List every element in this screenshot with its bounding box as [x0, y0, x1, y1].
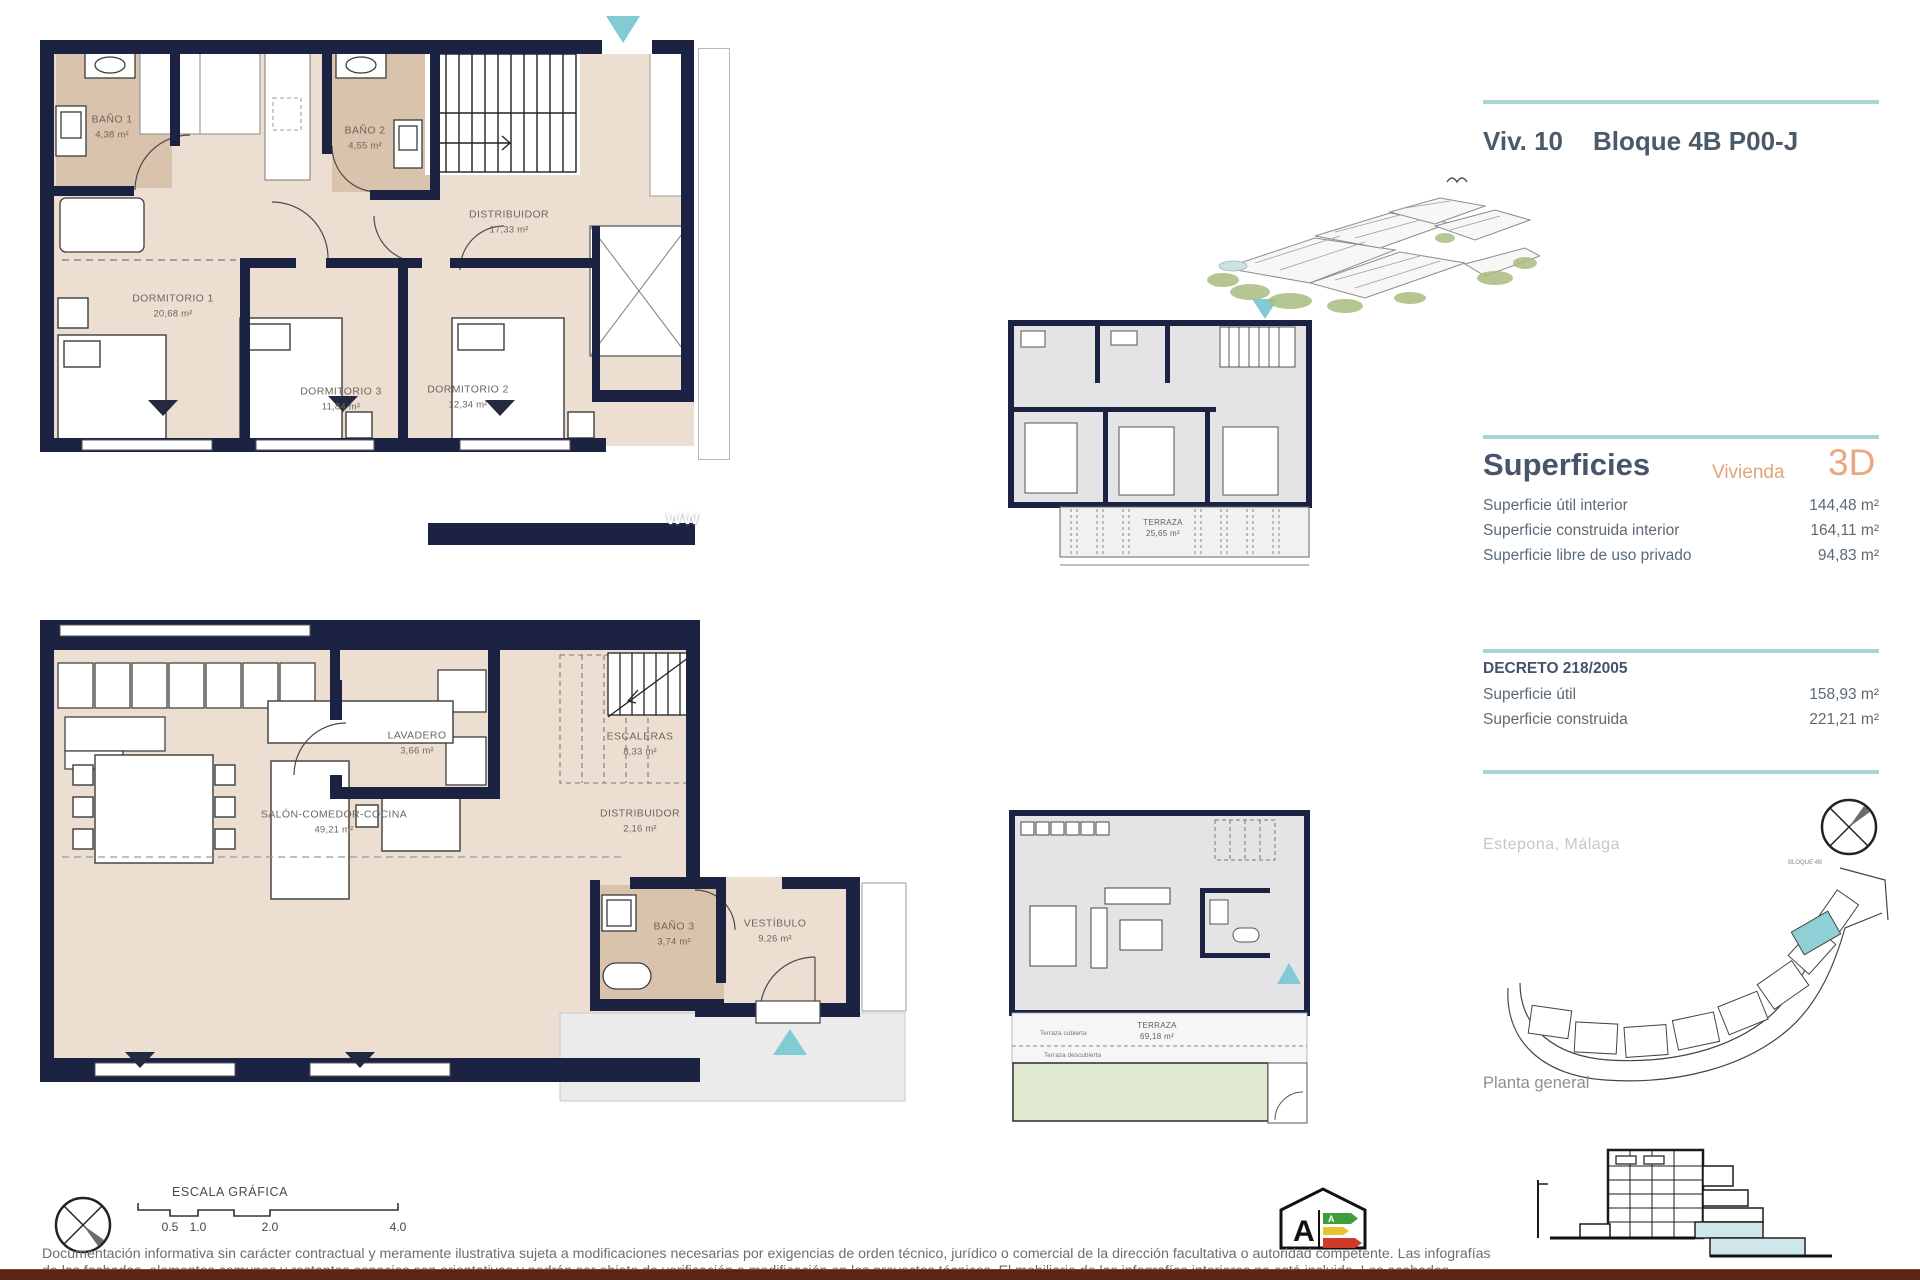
- room-label-bano1: BAÑO 1 4,38 m²: [92, 112, 133, 141]
- svg-text:A: A: [1328, 1214, 1335, 1224]
- mini-upper-terraza-label: TERRAZA 25,65 m²: [1143, 518, 1182, 540]
- room-area: 20,68 m²: [153, 308, 192, 319]
- room-label-dormitorio3: DORMITORIO 3 11,84 m²: [300, 384, 382, 413]
- room-area: 69,18 m²: [1140, 1032, 1174, 1041]
- svg-text:2.0: 2.0: [262, 1220, 279, 1234]
- room-name: BAÑO 2: [345, 124, 386, 136]
- room-label-distribuidor-p0: DISTRIBUIDOR 2,16 m²: [600, 806, 680, 835]
- room-name: DORMITORIO 1: [132, 292, 214, 304]
- row-label: Superficie útil: [1483, 686, 1576, 704]
- room-label-bano3: BAÑO 3 3,74 m²: [654, 919, 695, 948]
- room-area: 11,84 m²: [322, 401, 360, 412]
- mini-lower-terraza-label: TERRAZA 69,18 m²: [1137, 1021, 1176, 1043]
- room-area: 9,26 m²: [758, 933, 792, 944]
- aerial-3d-sketch: [1195, 168, 1540, 346]
- upper-floor-plan-drawing: [40, 40, 740, 480]
- room-area: 3,66 m²: [400, 745, 434, 756]
- room-label-bano2: BAÑO 2 4,55 m²: [345, 123, 386, 152]
- room-label-distribuidor-p1: DISTRIBUIDOR 17,33 m²: [469, 207, 549, 236]
- location-label: Estepona, Málaga: [1483, 836, 1620, 854]
- room-name: ESCALERAS: [607, 730, 674, 742]
- site-plan-block-label: BLOQUE 4B: [1788, 860, 1822, 866]
- room-name: DISTRIBUIDOR: [600, 807, 680, 819]
- room-name: BAÑO 3: [654, 920, 695, 932]
- row-value: 94,83 m²: [1818, 547, 1879, 565]
- room-label-salon: SALÓN-COMEDOR-COCINA 49,21 m²: [261, 807, 407, 836]
- upper-plan-balcony-edge: [698, 48, 730, 460]
- room-label-escaleras: ESCALERAS 8,33 m²: [607, 729, 674, 758]
- room-name: SALÓN-COMEDOR-COCINA: [261, 808, 407, 820]
- room-area: 4,38 m²: [95, 129, 129, 140]
- row-value: 144,48 m²: [1809, 497, 1879, 515]
- block-code: Bloque 4B P00-J: [1593, 126, 1798, 156]
- upper-plan-entrance-arrow-icon: [606, 16, 640, 43]
- bird-icon: [1447, 178, 1467, 182]
- room-name: TERRAZA: [1137, 1021, 1176, 1030]
- row-value: 158,93 m²: [1809, 686, 1879, 704]
- footer-bar: [0, 1269, 1920, 1280]
- room-name: BAÑO 1: [92, 113, 133, 125]
- row-label: Superficie construida: [1483, 711, 1628, 729]
- room-area: 17,33 m²: [489, 224, 528, 235]
- room-area: 3,74 m²: [657, 936, 691, 947]
- lower-floor-plan: [40, 505, 910, 1105]
- decreto-row: Superficie construida 221,21 m²: [1483, 711, 1879, 729]
- unit-number: Viv. 10: [1483, 126, 1563, 156]
- room-label-lavadero: LAVADERO 3,66 m²: [388, 728, 447, 757]
- room-label-dormitorio2: DORMITORIO 2 12,34 m²: [427, 382, 509, 411]
- room-area: 8,33 m²: [623, 746, 657, 757]
- scale-bar: 0.5 1.0 2.0 4.0: [136, 1200, 416, 1236]
- disclaimer-line-1: Documentación informativa sin carácter c…: [42, 1246, 1916, 1262]
- superficies-row: Superficie construida interior 164,11 m²: [1483, 522, 1879, 540]
- energy-rating-icon: A A: [1273, 1184, 1373, 1252]
- divider-line-top: [1483, 100, 1879, 104]
- room-area: 49,21 m²: [314, 824, 353, 835]
- row-label: Superficie construida interior: [1483, 522, 1679, 540]
- scale-bar-title: ESCALA GRÁFICA: [172, 1185, 288, 1199]
- lower-floor-plan-drawing: [40, 505, 910, 1105]
- svg-text:0.5: 0.5: [162, 1220, 179, 1234]
- room-label-vestibulo: VESTÍBULO 9,26 m²: [744, 916, 807, 945]
- room-name: LAVADERO: [388, 729, 447, 741]
- room-name: DORMITORIO 3: [300, 385, 382, 397]
- upper-floor-plan: [40, 40, 740, 480]
- room-area: 25,65 m²: [1146, 529, 1180, 538]
- compass-icon: [1818, 796, 1880, 858]
- room-area: 12,34 m²: [448, 399, 487, 410]
- superficies-row: Superficie útil interior 144,48 m²: [1483, 497, 1879, 515]
- room-name: DISTRIBUIDOR: [469, 208, 549, 220]
- room-name: DORMITORIO 2: [427, 383, 509, 395]
- mini-lower-uncovered-label: Terraza descubierta: [1044, 1052, 1101, 1059]
- divider-line-decreto-bottom: [1483, 770, 1879, 774]
- row-value: 164,11 m²: [1810, 522, 1879, 540]
- superficies-title: Superficies: [1483, 447, 1650, 483]
- room-label-dormitorio1: DORMITORIO 1 20,68 m²: [132, 291, 214, 320]
- mini-plan-lower-drawing: [1005, 808, 1315, 1128]
- row-value: 221,21 m²: [1809, 711, 1879, 729]
- room-area: 4,55 m²: [348, 140, 382, 151]
- mini-lower-covered-label: Terraza cubierta: [1040, 1030, 1087, 1037]
- svg-text:4.0: 4.0: [390, 1220, 407, 1234]
- divider-line-superficies: [1483, 435, 1879, 439]
- row-label: Superficie libre de uso privado: [1483, 547, 1692, 565]
- superficies-row: Superficie libre de uso privado 94,83 m²: [1483, 547, 1879, 565]
- tag-3d: 3D: [1828, 442, 1875, 484]
- floorplan-sheet: BAÑO 1 4,38 m² BAÑO 2 4,55 m² DISTRIBUID…: [0, 0, 1920, 1280]
- mini-plan-lower: [1005, 808, 1315, 1128]
- room-name: VESTÍBULO: [744, 917, 807, 929]
- svg-text:1.0: 1.0: [190, 1220, 207, 1234]
- planta-general-label: Planta general: [1483, 1074, 1589, 1093]
- room-area: 2,16 m²: [623, 823, 657, 834]
- page-title: Viv. 10Bloque 4B P00-J: [1483, 126, 1798, 157]
- vivienda-label: Vivienda: [1712, 462, 1785, 484]
- svg-text:A: A: [1293, 1215, 1315, 1248]
- room-name: TERRAZA: [1143, 518, 1182, 527]
- row-label: Superficie útil interior: [1483, 497, 1628, 515]
- site-plan-drawing: [1490, 858, 1900, 1106]
- decreto-title: DECRETO 218/2005: [1483, 660, 1627, 678]
- decreto-row: Superficie útil 158,93 m²: [1483, 686, 1879, 704]
- watermark: WW: [666, 509, 700, 529]
- divider-line-decreto-top: [1483, 649, 1879, 653]
